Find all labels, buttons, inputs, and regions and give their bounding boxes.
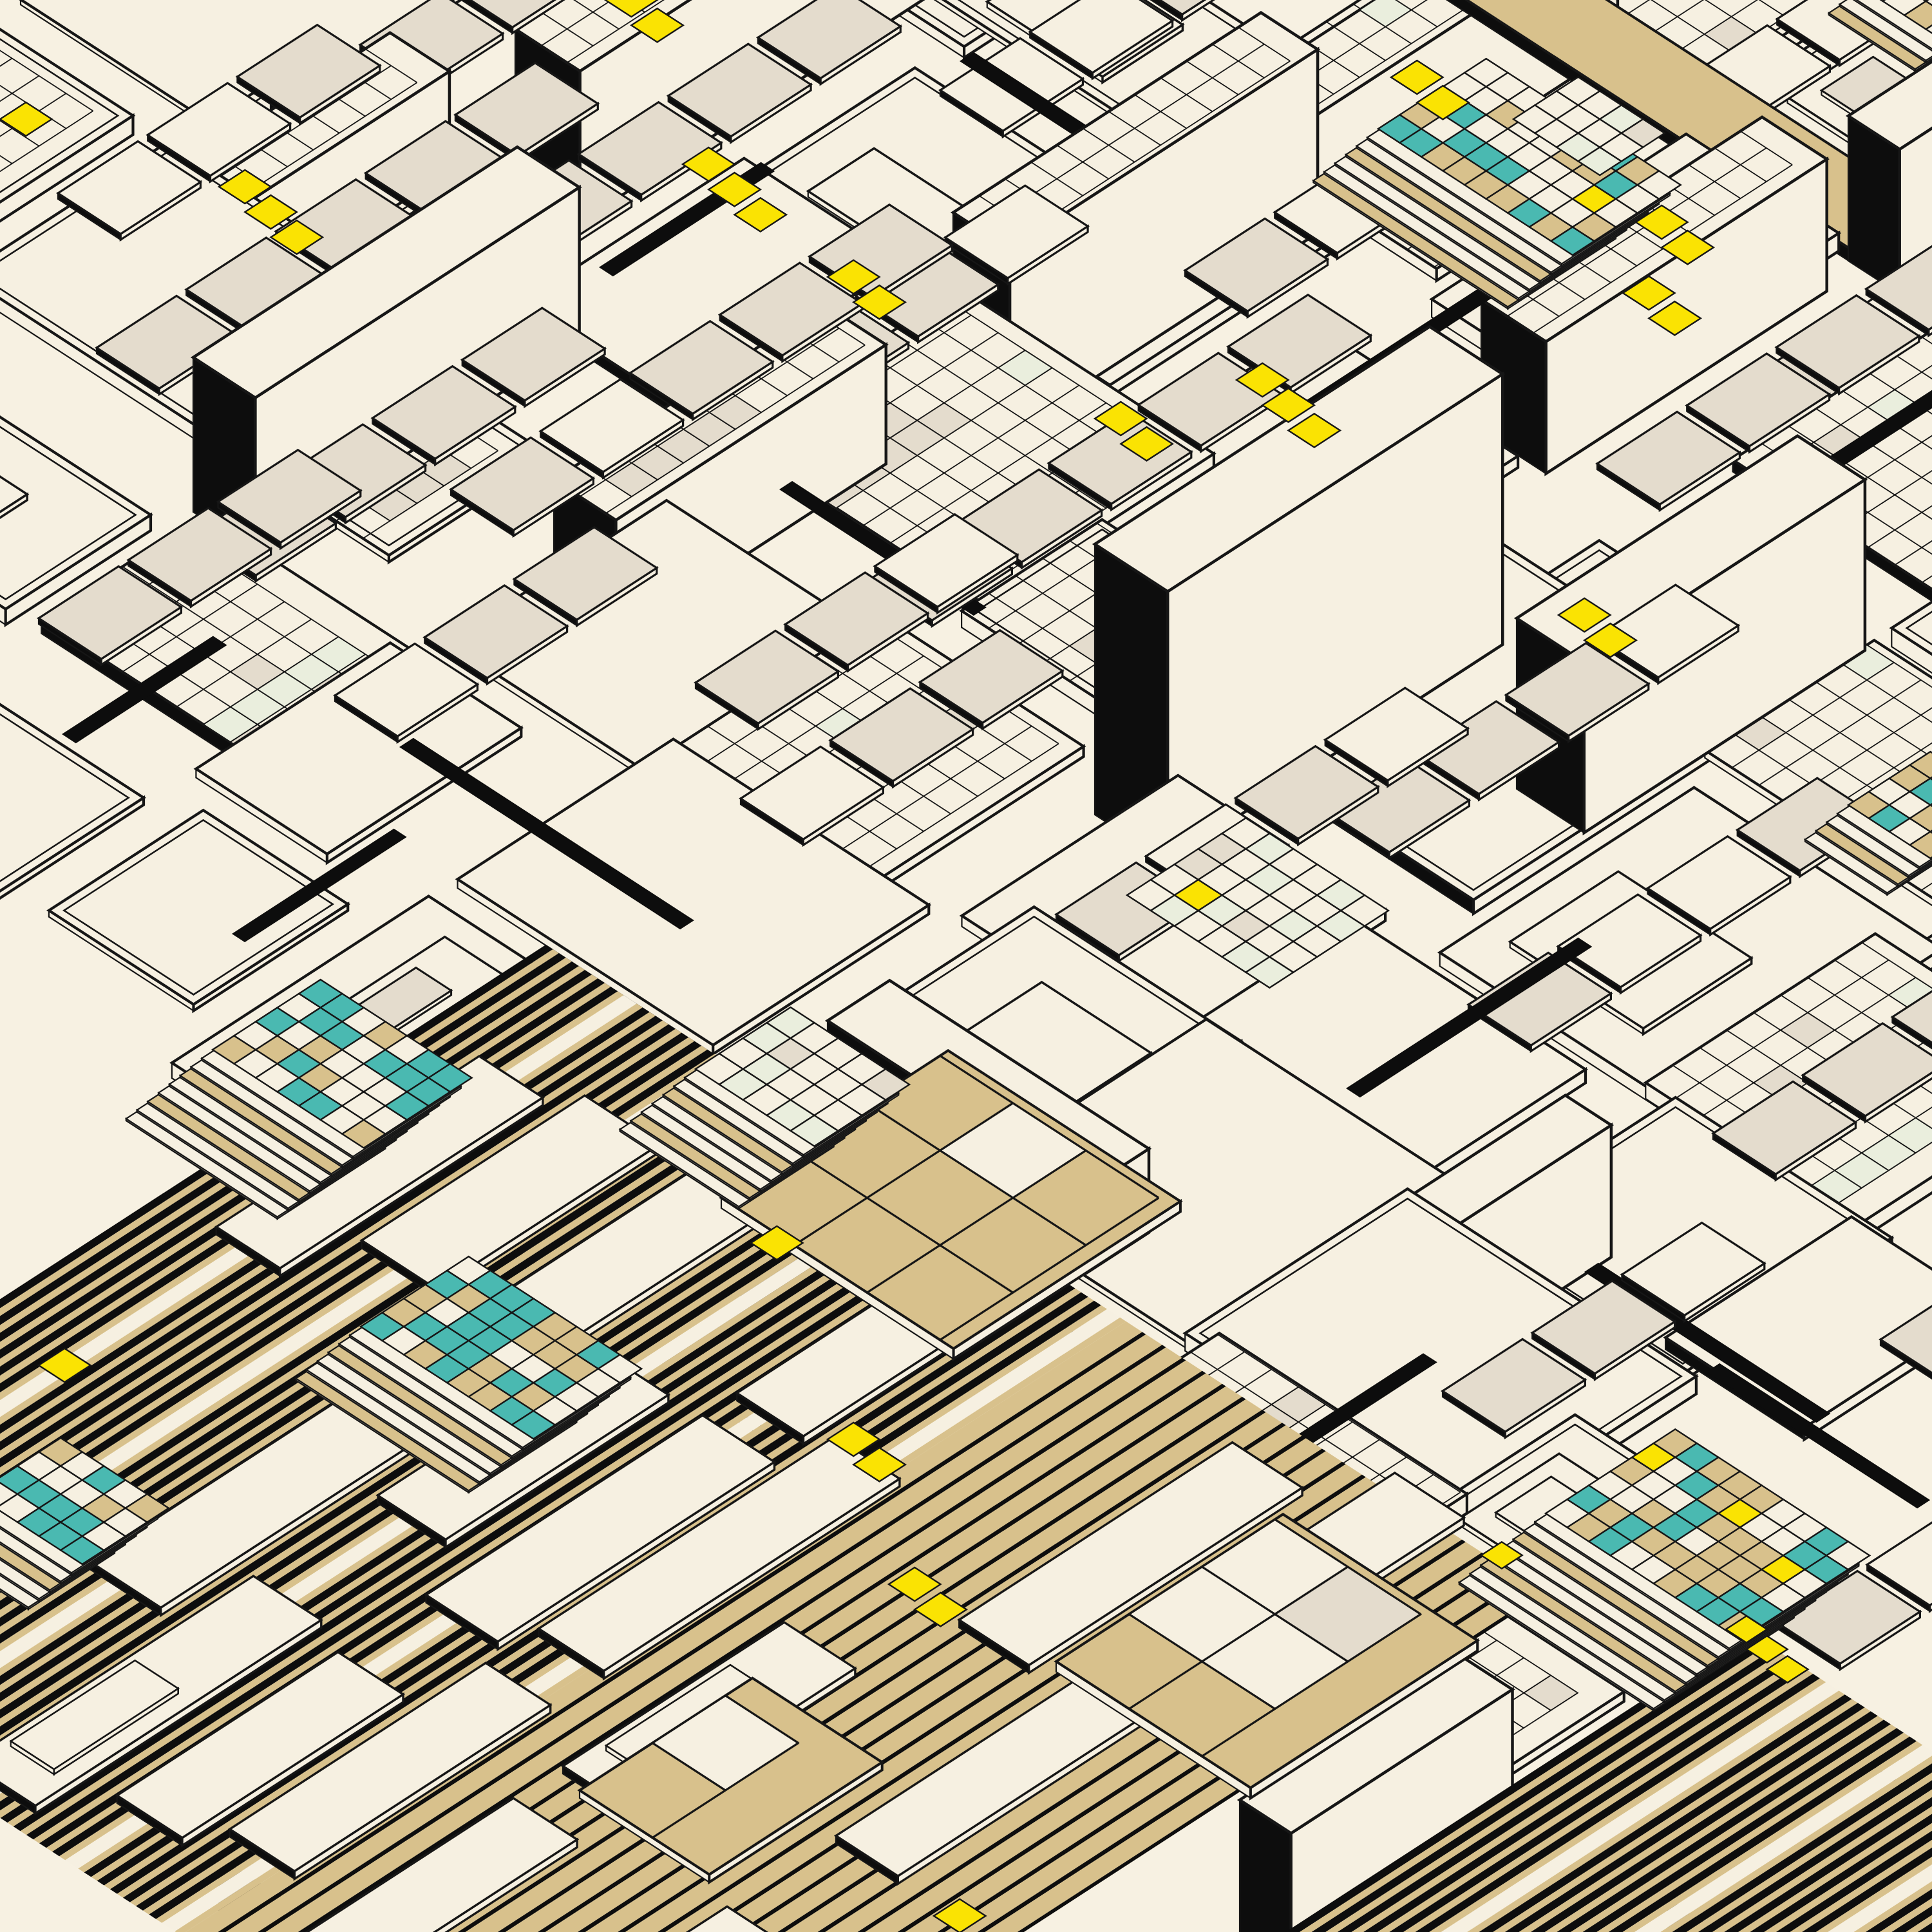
generative-artwork xyxy=(0,0,1932,1932)
isometric-city-canvas xyxy=(0,0,1932,1932)
